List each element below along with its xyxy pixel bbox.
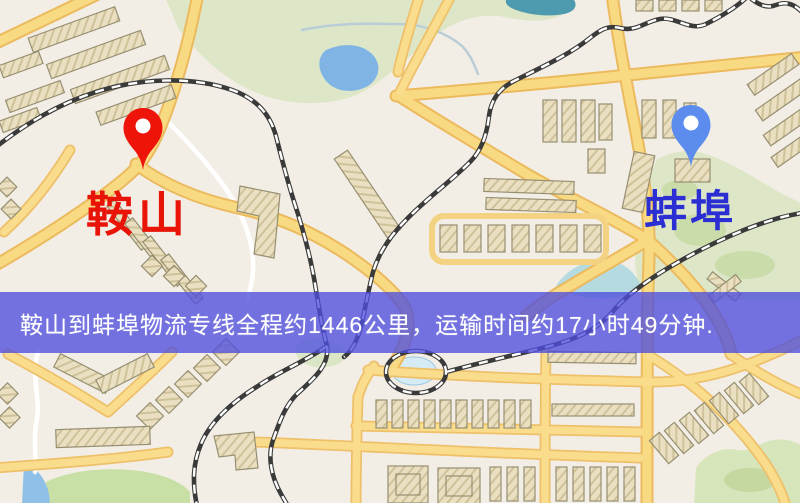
info-banner: 鞍山到蚌埠物流专线全程约1446公里，运输时间约17小时49分钟. bbox=[0, 292, 800, 353]
map-screenshot: 鞍山 蚌埠 鞍山到蚌埠物流专线全程约1446公里，运输时间约17小时49分钟. bbox=[0, 0, 800, 503]
destination-city-label: 蚌埠 bbox=[644, 177, 736, 239]
info-banner-text: 鞍山到蚌埠物流专线全程约1446公里，运输时间约17小时49分钟. bbox=[0, 306, 714, 340]
map-canvas bbox=[0, 0, 800, 503]
origin-city-label: 鞍山 bbox=[86, 176, 190, 245]
